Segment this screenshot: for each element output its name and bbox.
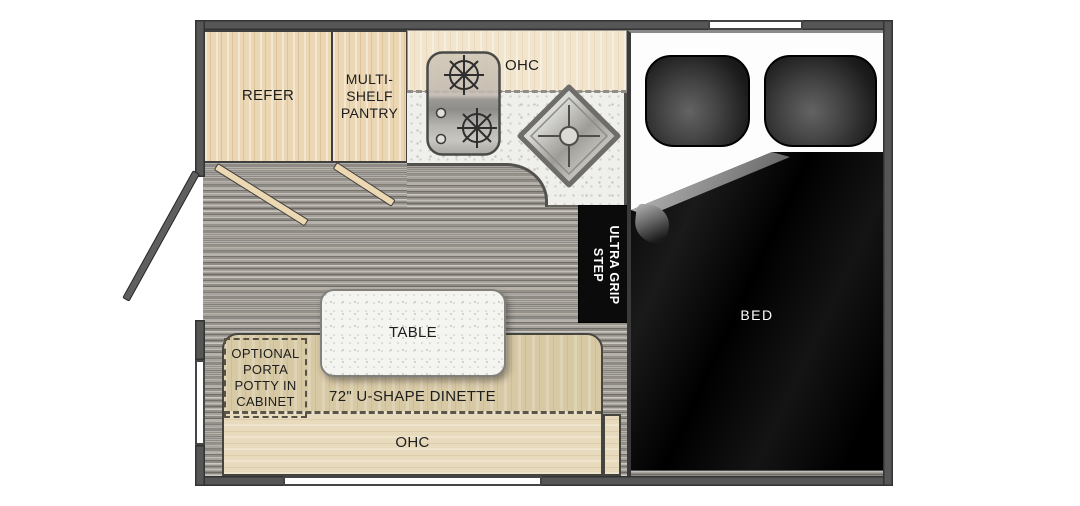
porta-potty-cabinet: OPTIONAL PORTA POTTY IN CABINET	[224, 338, 307, 418]
pillow	[645, 55, 750, 147]
wall-left	[195, 320, 205, 360]
window-top	[708, 20, 803, 30]
step-label: ULTRA GRIP STEP	[579, 221, 631, 309]
bed-area: BED	[627, 30, 883, 478]
bed-label: BED	[631, 307, 883, 324]
window-left	[195, 360, 205, 445]
wall-left	[195, 20, 205, 177]
refer-label: REFER	[242, 87, 294, 105]
dinette-cabinet-extension	[603, 414, 621, 476]
entry-door-leaf	[122, 170, 200, 302]
kitchen-ohc-label: OHC	[505, 57, 539, 75]
sink-icon	[517, 84, 621, 188]
refrigerator-cabinet: REFER	[203, 30, 333, 163]
pillow	[764, 55, 877, 147]
wall-right	[883, 20, 893, 486]
pantry-label: MULTI-SHELF PANTRY	[333, 71, 406, 122]
dinette-table: TABLE	[320, 289, 506, 377]
wall-left	[195, 445, 205, 486]
ultra-grip-step: ULTRA GRIP STEP	[578, 205, 630, 323]
porta-potty-label: OPTIONAL PORTA POTTY IN CABINET	[228, 346, 303, 409]
stove-burners-icon	[426, 51, 501, 156]
pantry-cabinet: MULTI-SHELF PANTRY	[331, 30, 408, 163]
floorplan: REFER MULTI-SHELF PANTRY	[0, 0, 1080, 506]
dinette-ohc-label: OHC	[224, 434, 601, 452]
table-label: TABLE	[389, 324, 437, 342]
window-bottom	[283, 476, 542, 486]
